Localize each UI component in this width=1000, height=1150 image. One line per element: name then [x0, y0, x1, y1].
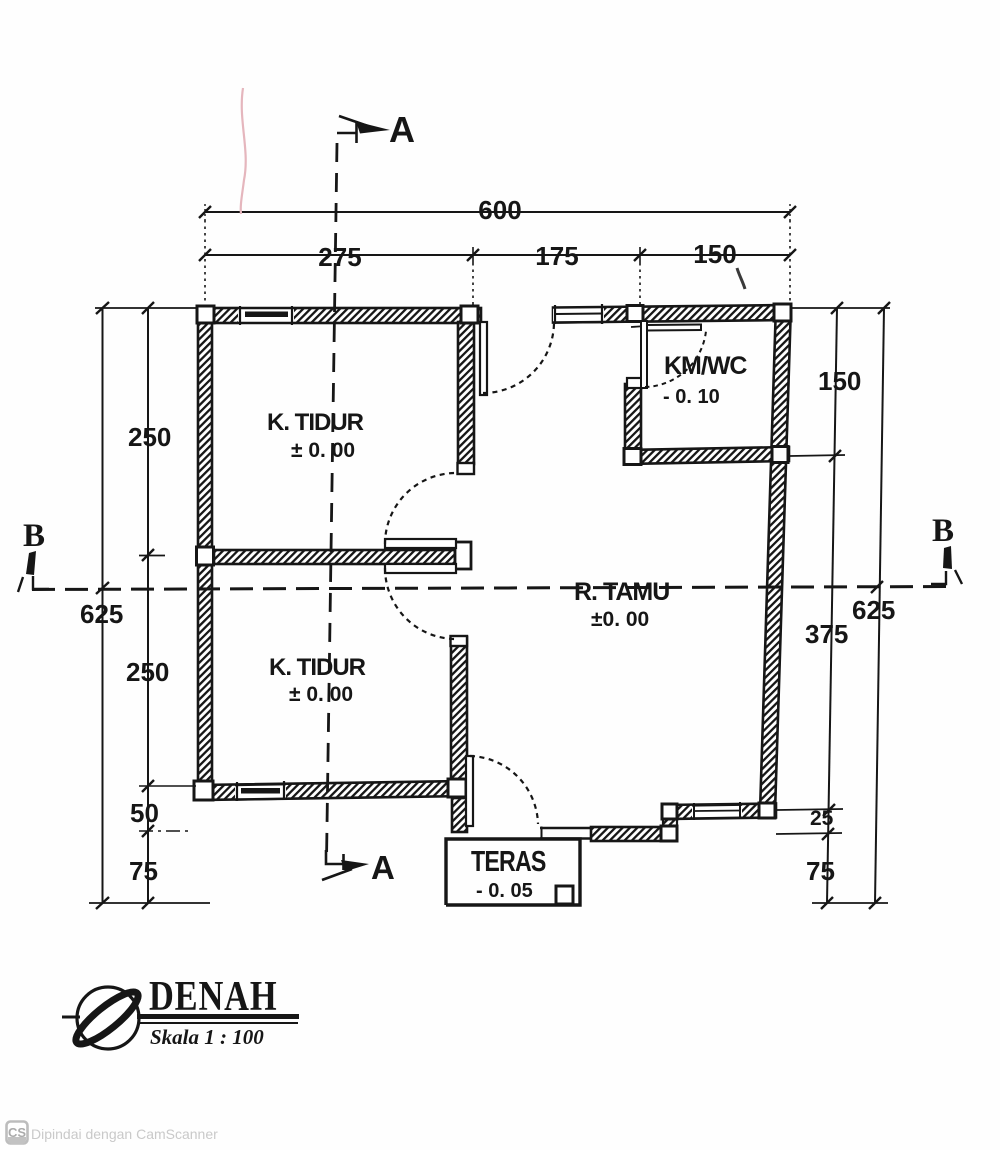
svg-text:CS: CS — [8, 1125, 26, 1140]
svg-text:275: 275 — [318, 242, 361, 272]
svg-text:K. TIDUR: K. TIDUR — [269, 654, 366, 681]
svg-text:150: 150 — [693, 239, 736, 269]
svg-text:375: 375 — [805, 619, 848, 649]
svg-text:625: 625 — [852, 595, 895, 625]
svg-text:± 0. 00: ± 0. 00 — [289, 683, 353, 706]
svg-text:25: 25 — [810, 807, 834, 830]
svg-text:- 0. 10: - 0. 10 — [663, 386, 720, 408]
svg-text:150: 150 — [818, 366, 861, 396]
svg-text:- 0. 05: - 0. 05 — [476, 880, 533, 902]
svg-text:625: 625 — [80, 599, 123, 629]
svg-text:TERAS: TERAS — [471, 844, 546, 877]
svg-text:DENAH: DENAH — [149, 974, 277, 1020]
svg-text:B: B — [23, 518, 45, 554]
svg-text:B: B — [932, 513, 954, 549]
svg-text:600: 600 — [478, 195, 521, 225]
svg-text:±0. 00: ±0. 00 — [591, 608, 649, 631]
svg-text:Dipindai dengan CamScanner: Dipindai dengan CamScanner — [31, 1126, 218, 1142]
svg-text:KM/WC: KM/WC — [664, 352, 747, 380]
svg-text:A: A — [371, 849, 395, 886]
svg-text:K. TIDUR: K. TIDUR — [267, 409, 364, 436]
svg-text:± 0. 00: ± 0. 00 — [291, 439, 355, 462]
svg-text:Skala 1 : 100: Skala 1 : 100 — [150, 1025, 264, 1049]
svg-text:250: 250 — [128, 422, 171, 452]
svg-text:75: 75 — [806, 856, 835, 886]
svg-text:R. TAMU: R. TAMU — [574, 578, 669, 606]
svg-text:A: A — [389, 109, 415, 150]
svg-text:75: 75 — [129, 856, 158, 886]
svg-text:175: 175 — [535, 241, 578, 271]
svg-text:250: 250 — [126, 657, 169, 687]
svg-text:50: 50 — [130, 798, 159, 828]
